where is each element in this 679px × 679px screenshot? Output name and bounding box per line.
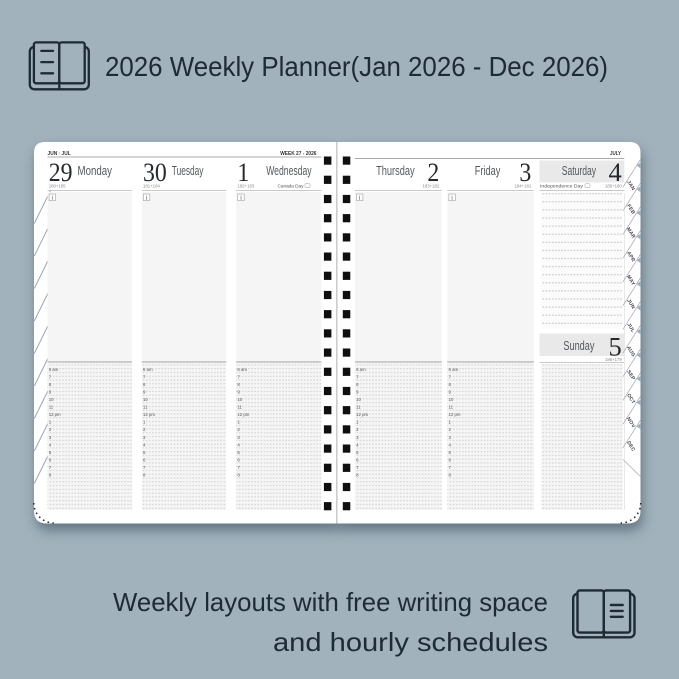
svg-text:6 am: 6 am — [237, 367, 247, 372]
svg-text:11: 11 — [49, 405, 54, 410]
svg-text:Independence Day: Independence Day — [540, 184, 584, 189]
svg-text:2026 Weekly Planner(Jan 2026 -: 2026 Weekly Planner(Jan 2026 - Dec 2026) — [105, 51, 608, 82]
svg-text:12 pm: 12 pm — [143, 412, 155, 417]
svg-text:Saturday: Saturday — [562, 164, 597, 178]
svg-text:12 pm: 12 pm — [49, 412, 61, 417]
svg-text:Weekly layouts with free writi: Weekly layouts with free writing space — [113, 587, 548, 617]
svg-text:181+184: 181+184 — [143, 183, 160, 188]
svg-text:11: 11 — [237, 405, 242, 410]
svg-text:11: 11 — [143, 405, 148, 410]
svg-text:6 am: 6 am — [449, 367, 459, 372]
svg-text:12 pm: 12 pm — [449, 412, 461, 417]
svg-text:182+183: 182+183 — [237, 183, 254, 188]
svg-text:and hourly schedules: and hourly schedules — [273, 627, 548, 657]
svg-text:Monday: Monday — [78, 164, 113, 178]
svg-text:Wednesday: Wednesday — [266, 164, 312, 178]
svg-text:185+180: 185+180 — [605, 183, 622, 188]
svg-text:11: 11 — [356, 405, 361, 410]
svg-text:10: 10 — [237, 397, 242, 402]
svg-text:11: 11 — [449, 405, 454, 410]
svg-text:10: 10 — [143, 397, 148, 402]
svg-text:Thursday: Thursday — [376, 164, 415, 178]
svg-text:184+181: 184+181 — [514, 183, 531, 188]
svg-text:10: 10 — [449, 397, 454, 402]
svg-text:Sunday: Sunday — [563, 339, 595, 353]
svg-text:183+182: 183+182 — [422, 183, 439, 188]
svg-text:10: 10 — [49, 397, 54, 402]
svg-text:WEEK 27 - 2026: WEEK 27 - 2026 — [280, 151, 316, 157]
svg-text:180+185: 180+185 — [49, 183, 66, 188]
svg-text:Tuesday: Tuesday — [172, 164, 204, 178]
svg-text:Friday: Friday — [475, 164, 501, 178]
svg-text:6 am: 6 am — [356, 367, 366, 372]
svg-text:6 am: 6 am — [49, 367, 59, 372]
svg-text:10: 10 — [356, 397, 361, 402]
svg-text:6 am: 6 am — [143, 367, 153, 372]
svg-text:12 pm: 12 pm — [356, 412, 368, 417]
svg-text:186+179: 186+179 — [605, 357, 622, 362]
svg-text:Canada Day: Canada Day — [278, 184, 305, 189]
svg-text:12 pm: 12 pm — [237, 412, 249, 417]
